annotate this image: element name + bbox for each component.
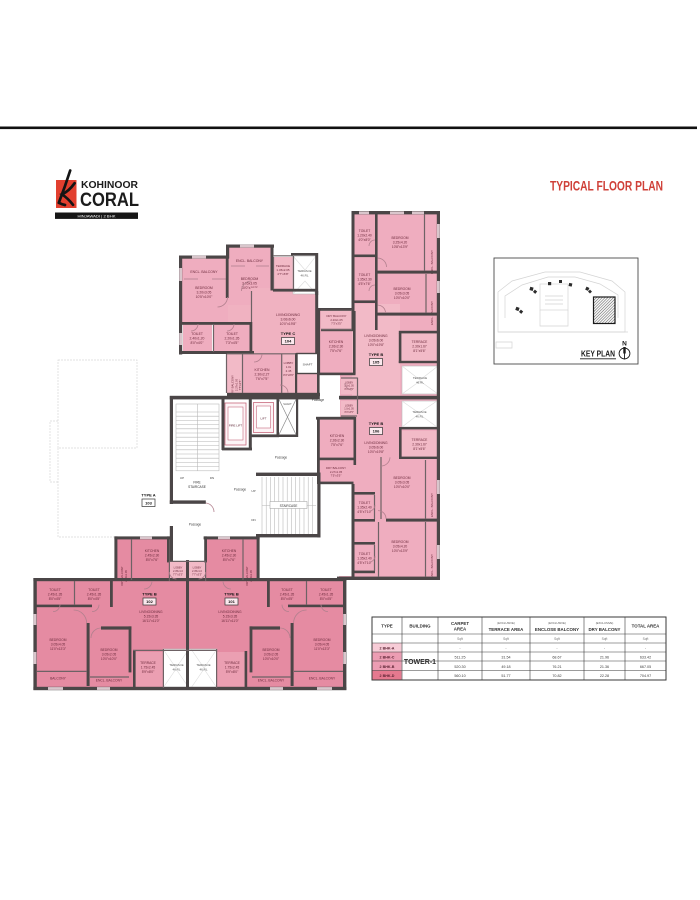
svg-text:BEDROOM: BEDROOM	[262, 648, 279, 652]
svg-text:105: 105	[373, 360, 380, 365]
svg-text:11'0"x13'3": 11'0"x13'3"	[50, 647, 67, 651]
svg-text:ENCL. BALCONY: ENCL. BALCONY	[309, 677, 336, 681]
svg-text:8'1"x5'6": 8'1"x5'6"	[413, 349, 426, 353]
svg-text:Sqft: Sqft	[643, 637, 649, 641]
svg-text:KITCHEN: KITCHEN	[330, 434, 345, 438]
svg-text:DRY BALCONY: DRY BALCONY	[245, 566, 249, 585]
svg-text:TYPICAL FLOOR PLAN: TYPICAL FLOOR PLAN	[550, 179, 663, 194]
svg-text:(EXCLUSIVE): (EXCLUSIVE)	[548, 621, 566, 625]
svg-text:ENCLOSE BALCONY: ENCLOSE BALCONY	[535, 627, 579, 632]
svg-text:LIVING/DINING: LIVING/DINING	[364, 334, 388, 338]
svg-text:(EXCLUSIVE): (EXCLUSIVE)	[596, 621, 614, 625]
svg-text:ENCL. BALCONY: ENCL. BALCONY	[430, 554, 434, 578]
svg-text:TERRACE: TERRACE	[412, 340, 429, 344]
svg-text:633.42: 633.42	[640, 656, 651, 660]
svg-text:TYPE: TYPE	[381, 624, 393, 629]
svg-text:LIVING/DINING: LIVING/DINING	[276, 313, 300, 317]
svg-text:TOILET: TOILET	[320, 588, 331, 592]
svg-text:LIVING/DINING: LIVING/DINING	[218, 610, 242, 614]
svg-text:2.35x1.0: 2.35x1.0	[173, 569, 184, 573]
svg-text:2 BHK-D: 2 BHK-D	[380, 674, 395, 678]
svg-text:10'8"x13'9": 10'8"x13'9"	[392, 245, 409, 249]
svg-text:STAIRCASE: STAIRCASE	[188, 485, 206, 489]
svg-text:BEDROOM: BEDROOM	[391, 236, 408, 240]
svg-text:LIVING/DINING: LIVING/DINING	[364, 441, 388, 445]
svg-text:TYPE C: TYPE C	[281, 331, 296, 336]
svg-text:SHAFT: SHAFT	[283, 402, 292, 406]
svg-text:10'0"x13'9": 10'0"x13'9"	[392, 549, 409, 553]
svg-text:2.26x2.30: 2.26x2.30	[330, 439, 345, 443]
svg-text:68.67: 68.67	[552, 656, 561, 660]
svg-text:2.45x1.35: 2.45x1.35	[87, 593, 102, 597]
svg-text:TOWER-1: TOWER-1	[404, 659, 436, 666]
svg-text:UP: UP	[251, 489, 255, 493]
svg-text:46.RL: 46.RL	[300, 274, 308, 278]
svg-text:TOTAL AREA: TOTAL AREA	[632, 624, 660, 629]
svg-text:5.15x3.35: 5.15x3.35	[144, 615, 159, 619]
svg-text:8'0"x4'5": 8'0"x4'5"	[320, 597, 333, 601]
svg-text:2.45x2.30: 2.45x2.30	[222, 554, 237, 558]
svg-text:4'0"x8'0": 4'0"x8'0"	[358, 238, 371, 242]
svg-text:7'3"x4'5": 7'3"x4'5"	[226, 341, 240, 345]
svg-text:46.RL: 46.RL	[415, 415, 423, 419]
svg-text:N: N	[622, 341, 627, 348]
svg-text:10'0"x10'0": 10'0"x10'0"	[101, 657, 118, 661]
svg-text:3.05x6.00: 3.05x6.00	[369, 446, 384, 450]
svg-text:DRY BALCONY: DRY BALCONY	[589, 627, 621, 632]
svg-text:Passage: Passage	[275, 456, 288, 460]
svg-text:31.54: 31.54	[501, 656, 510, 660]
svg-text:2.20x1.35: 2.20x1.35	[225, 337, 240, 341]
svg-text:704.97: 704.97	[640, 674, 651, 678]
svg-text:TYPE B: TYPE B	[224, 592, 239, 597]
svg-text:21.96: 21.96	[600, 656, 609, 660]
svg-text:2.26x2.30: 2.26x2.30	[329, 345, 344, 349]
svg-text:1.35x2.40: 1.35x2.40	[357, 506, 372, 510]
svg-text:10'5"x10'0": 10'5"x10'0"	[196, 295, 214, 299]
svg-text:22.28: 22.28	[600, 674, 609, 678]
svg-text:51.77: 51.77	[501, 674, 510, 678]
svg-text:16'11"x11'0": 16'11"x11'0"	[142, 619, 160, 623]
svg-text:TERRACE: TERRACE	[140, 661, 157, 665]
svg-text:7'7"x3'3": 7'7"x3'3"	[192, 573, 202, 577]
svg-text:UP: UP	[180, 476, 184, 480]
svg-text:102: 102	[146, 599, 153, 604]
svg-text:10'0"x10'0": 10'0"x10'0"	[394, 485, 411, 489]
svg-text:ENCL. BALCONY: ENCL. BALCONY	[430, 250, 434, 274]
svg-text:4'5"x7'6": 4'5"x7'6"	[358, 282, 371, 286]
svg-text:BEDROOM: BEDROOM	[393, 476, 410, 480]
svg-text:7'5"x3'5": 7'5"x3'5"	[238, 380, 242, 391]
svg-text:TERRACE: TERRACE	[413, 376, 427, 380]
svg-text:49.18: 49.18	[501, 665, 510, 669]
svg-text:Sqft: Sqft	[554, 637, 560, 641]
svg-text:LIFT: LIFT	[261, 417, 267, 421]
svg-text:TERRACE: TERRACE	[169, 663, 183, 667]
svg-text:CORAL: CORAL	[80, 189, 139, 211]
svg-text:FIRE: FIRE	[193, 481, 200, 485]
svg-text:1.75x2.45: 1.75x2.45	[141, 666, 156, 670]
svg-text:BEDROOM: BEDROOM	[313, 638, 330, 642]
svg-text:TERRACE: TERRACE	[412, 410, 426, 414]
svg-text:SHAFT: SHAFT	[303, 363, 313, 367]
svg-text:BEDROOM: BEDROOM	[49, 638, 66, 642]
svg-text:2 BHK-A: 2 BHK-A	[380, 647, 395, 651]
svg-text:Passage: Passage	[234, 488, 247, 492]
svg-text:3.05x3.05: 3.05x3.05	[395, 481, 410, 485]
svg-text:7'7"x3'3": 7'7"x3'3"	[173, 573, 183, 577]
svg-text:2.40x1.20: 2.40x1.20	[190, 337, 205, 341]
svg-text:TERRACE: TERRACE	[297, 269, 311, 273]
svg-text:667.05: 667.05	[640, 665, 651, 669]
svg-text:ENCL. BALCONY: ENCL. BALCONY	[236, 259, 264, 263]
svg-text:8'0"x7'6": 8'0"x7'6"	[146, 558, 159, 562]
svg-text:TOILET: TOILET	[359, 501, 370, 505]
svg-text:104: 104	[285, 339, 292, 344]
svg-text:ENCL. BALCONY: ENCL. BALCONY	[190, 270, 218, 274]
svg-text:5'9"x8'0": 5'9"x8'0"	[226, 670, 239, 674]
svg-text:10'0"x10'0": 10'0"x10'0"	[394, 296, 411, 300]
svg-text:STAIRCASE: STAIRCASE	[280, 504, 298, 508]
svg-text:CARPET: CARPET	[451, 621, 469, 626]
svg-text:ENCL. BALCONY: ENCL. BALCONY	[430, 493, 434, 517]
svg-text:7'6"x7'5": 7'6"x7'5"	[256, 377, 270, 381]
svg-text:TYPE B: TYPE B	[142, 592, 157, 597]
svg-text:HINJAWADI | 2 BHK: HINJAWADI | 2 BHK	[78, 214, 117, 218]
svg-text:3.05x4.05: 3.05x4.05	[315, 643, 330, 647]
svg-text:KITCHEN: KITCHEN	[222, 549, 237, 553]
svg-text:10'0"x19'8": 10'0"x19'8"	[368, 343, 385, 347]
svg-text:Sqft: Sqft	[503, 637, 509, 641]
svg-text:1.75x2.45: 1.75x2.45	[225, 666, 240, 670]
svg-text:DRY BALCONY: DRY BALCONY	[120, 566, 124, 585]
svg-text:101: 101	[228, 599, 235, 604]
svg-text:TOILET: TOILET	[359, 229, 370, 233]
svg-text:ENCL. BALCONY: ENCL. BALCONY	[258, 679, 285, 683]
svg-text:TOILET: TOILET	[359, 273, 370, 277]
svg-text:KITCHEN: KITCHEN	[145, 549, 160, 553]
svg-text:1.20x2.40: 1.20x2.40	[357, 234, 372, 238]
svg-text:46.RL: 46.RL	[416, 381, 424, 385]
svg-text:11'0"x13'3": 11'0"x13'3"	[314, 647, 331, 651]
svg-text:1.35x2.40: 1.35x2.40	[357, 557, 372, 561]
svg-text:2.45x2.30: 2.45x2.30	[145, 554, 160, 558]
svg-text:FIRE LIFT: FIRE LIFT	[229, 424, 243, 428]
svg-text:3.05x4.05: 3.05x4.05	[51, 643, 66, 647]
svg-text:8'0"x7'6": 8'0"x7'6"	[223, 558, 236, 562]
svg-text:2 BHK-B: 2 BHK-B	[380, 665, 395, 669]
svg-text:KITCHEN: KITCHEN	[329, 340, 344, 344]
svg-text:3.20x3.05: 3.20x3.05	[197, 291, 212, 295]
svg-text:7'5"x7'6": 7'5"x7'6"	[330, 349, 343, 353]
svg-text:2.35x1.0: 2.35x1.0	[192, 569, 203, 573]
svg-text:TERRACE AREA: TERRACE AREA	[489, 627, 525, 632]
svg-text:TYPE B: TYPE B	[369, 352, 384, 357]
svg-text:Sqft: Sqft	[602, 637, 608, 641]
svg-text:46.RL: 46.RL	[199, 668, 207, 672]
svg-text:16'11"x11'0": 16'11"x11'0"	[221, 619, 239, 623]
svg-text:TERRACE: TERRACE	[412, 438, 429, 442]
svg-text:4'7"x6'8": 4'7"x6'8"	[277, 272, 288, 276]
svg-text:103: 103	[145, 501, 152, 506]
svg-text:TOILET: TOILET	[281, 588, 292, 592]
svg-text:10'0"x19'8": 10'0"x19'8"	[368, 450, 385, 454]
svg-text:TOILET: TOILET	[49, 588, 60, 592]
svg-text:10'0"x19'8": 10'0"x19'8"	[280, 322, 298, 326]
svg-text:2.45x1.35: 2.45x1.35	[48, 593, 63, 597]
svg-text:8'0"x4'5": 8'0"x4'5"	[281, 597, 294, 601]
svg-text:8'0"x4'5": 8'0"x4'5"	[49, 597, 62, 601]
svg-text:21.36: 21.36	[600, 665, 609, 669]
svg-text:3'3"x3'5": 3'3"x3'5"	[344, 411, 354, 414]
svg-text:BEDROOM: BEDROOM	[393, 287, 410, 291]
svg-text:KITCHEN: KITCHEN	[255, 368, 270, 372]
svg-text:DN: DN	[251, 518, 255, 522]
svg-text:TOILET: TOILET	[88, 588, 99, 592]
svg-text:TOILET: TOILET	[359, 552, 370, 556]
svg-text:8'0"x4'5": 8'0"x4'5"	[88, 597, 101, 601]
svg-text:3'3"x8'0": 3'3"x8'0"	[283, 373, 294, 377]
svg-text:7'5"x7'6": 7'5"x7'6"	[331, 443, 344, 447]
svg-text:1.35x2.30: 1.35x2.30	[357, 278, 372, 282]
svg-text:511.25: 511.25	[454, 656, 465, 660]
svg-text:8'1"x5'6": 8'1"x5'6"	[413, 447, 426, 451]
svg-text:TERRACE: TERRACE	[196, 663, 210, 667]
svg-text:TERRACE: TERRACE	[224, 661, 241, 665]
svg-text:TOILET: TOILET	[226, 332, 238, 336]
svg-text:3.05x3.05: 3.05x3.05	[395, 292, 410, 296]
svg-text:TYPE B: TYPE B	[369, 421, 384, 426]
svg-text:3.05x4.20: 3.05x4.20	[393, 545, 408, 549]
svg-text:Sqft: Sqft	[457, 637, 463, 641]
svg-text:KEY PLAN: KEY PLAN	[581, 350, 615, 359]
svg-text:2.30x2.27: 2.30x2.27	[255, 373, 270, 377]
svg-text:3.06x6.00: 3.06x6.00	[281, 318, 296, 322]
svg-text:520.30: 520.30	[454, 665, 465, 669]
svg-text:7'3"x3'5": 7'3"x3'5"	[331, 322, 342, 326]
svg-text:BALCONY: BALCONY	[50, 677, 67, 681]
svg-text:70.82: 70.82	[552, 674, 561, 678]
svg-text:TYPE A: TYPE A	[141, 493, 155, 498]
svg-text:2.45x1.35: 2.45x1.35	[280, 593, 295, 597]
svg-text:8'0"x4'0": 8'0"x4'0"	[191, 341, 205, 345]
svg-text:2.45x1.35: 2.45x1.35	[319, 593, 334, 597]
svg-text:3.05x2.05: 3.05x2.05	[264, 653, 279, 657]
svg-text:560.10: 560.10	[454, 674, 465, 678]
svg-text:3.05x6.00: 3.05x6.00	[369, 339, 384, 343]
svg-text:2 BHK-C: 2 BHK-C	[380, 656, 395, 660]
svg-text:2.30x1.67: 2.30x1.67	[412, 345, 427, 349]
svg-text:BEDROOM: BEDROOM	[195, 286, 213, 290]
svg-text:5.15x3.35: 5.15x3.35	[223, 615, 238, 619]
svg-text:2.30x1.67: 2.30x1.67	[412, 443, 427, 447]
svg-text:3.05x2.05: 3.05x2.05	[102, 653, 117, 657]
svg-text:Passage: Passage	[312, 398, 325, 402]
svg-text:ENCL. BALCONY: ENCL. BALCONY	[96, 679, 123, 683]
svg-text:LOBBY: LOBBY	[174, 566, 183, 570]
svg-text:5'9"x8'0": 5'9"x8'0"	[142, 670, 155, 674]
svg-text:LOBBY: LOBBY	[193, 566, 202, 570]
svg-text:AREA: AREA	[454, 627, 467, 632]
svg-text:106: 106	[373, 429, 380, 434]
svg-text:LIVING/DINING: LIVING/DINING	[139, 610, 163, 614]
svg-text:BEDROOM: BEDROOM	[100, 648, 117, 652]
svg-text:Passage: Passage	[189, 523, 202, 527]
svg-text:TOILET: TOILET	[191, 332, 203, 336]
svg-text:BUILDING: BUILDING	[409, 624, 431, 629]
svg-text:76.21: 76.21	[552, 665, 561, 669]
svg-text:7'5"x3'5": 7'5"x3'5"	[331, 474, 342, 478]
svg-text:BEDROOM: BEDROOM	[391, 540, 408, 544]
svg-text:3.25x4.20: 3.25x4.20	[393, 241, 408, 245]
svg-text:BEDROOM: BEDROOM	[241, 277, 259, 281]
svg-text:DN: DN	[210, 476, 214, 480]
svg-text:(EXCLUSIVE): (EXCLUSIVE)	[497, 621, 515, 625]
svg-text:46.RL: 46.RL	[172, 668, 180, 672]
svg-text:10'0"x10'0": 10'0"x10'0"	[263, 657, 280, 661]
